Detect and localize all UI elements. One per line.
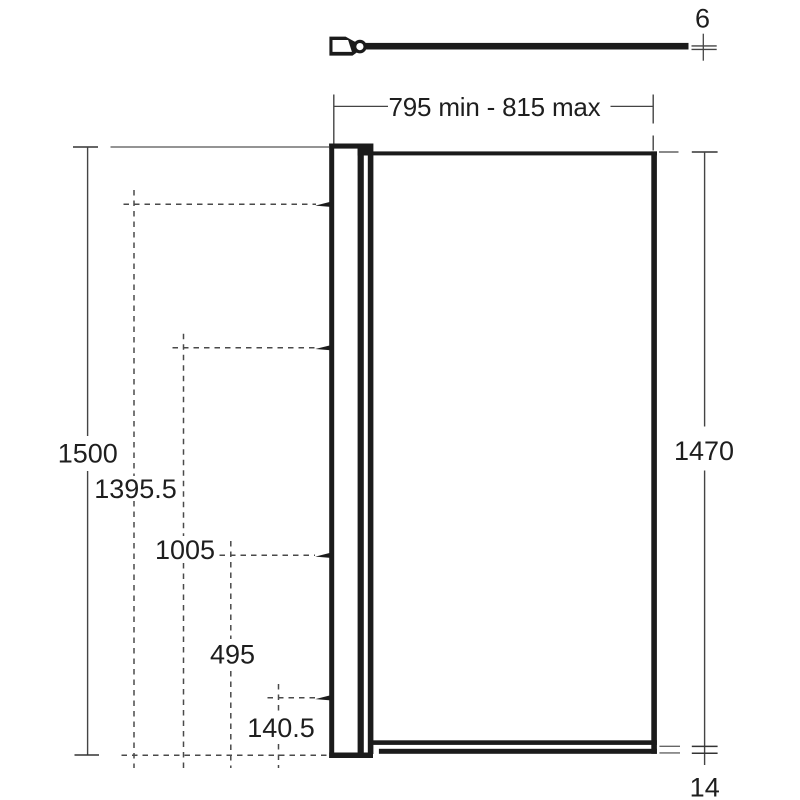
svg-text:14: 14: [690, 773, 720, 800]
svg-text:140.5: 140.5: [247, 713, 315, 743]
svg-text:6: 6: [695, 4, 710, 34]
svg-text:795 min - 815 max: 795 min - 815 max: [389, 92, 601, 122]
svg-text:495: 495: [210, 640, 255, 670]
svg-text:1395.5: 1395.5: [94, 474, 177, 504]
svg-text:1470: 1470: [674, 436, 734, 466]
svg-text:1005: 1005: [155, 535, 215, 565]
svg-text:1500: 1500: [58, 439, 118, 469]
